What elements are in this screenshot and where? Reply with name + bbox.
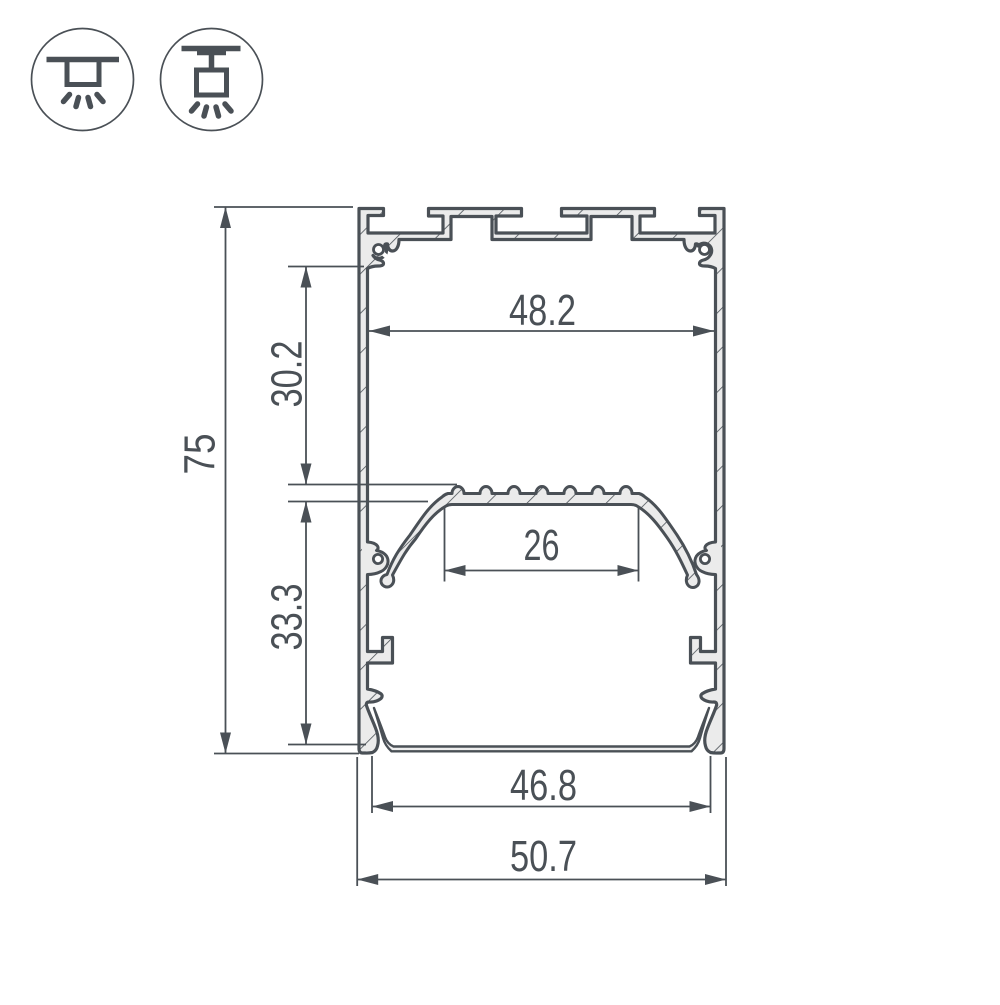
svg-text:33.3: 33.3	[263, 584, 312, 651]
svg-text:26: 26	[524, 521, 560, 570]
svg-text:50.7: 50.7	[510, 832, 577, 881]
svg-text:48.2: 48.2	[509, 286, 576, 335]
svg-text:75: 75	[176, 434, 225, 475]
svg-text:46.8: 46.8	[510, 761, 577, 810]
svg-text:30.2: 30.2	[263, 341, 312, 408]
